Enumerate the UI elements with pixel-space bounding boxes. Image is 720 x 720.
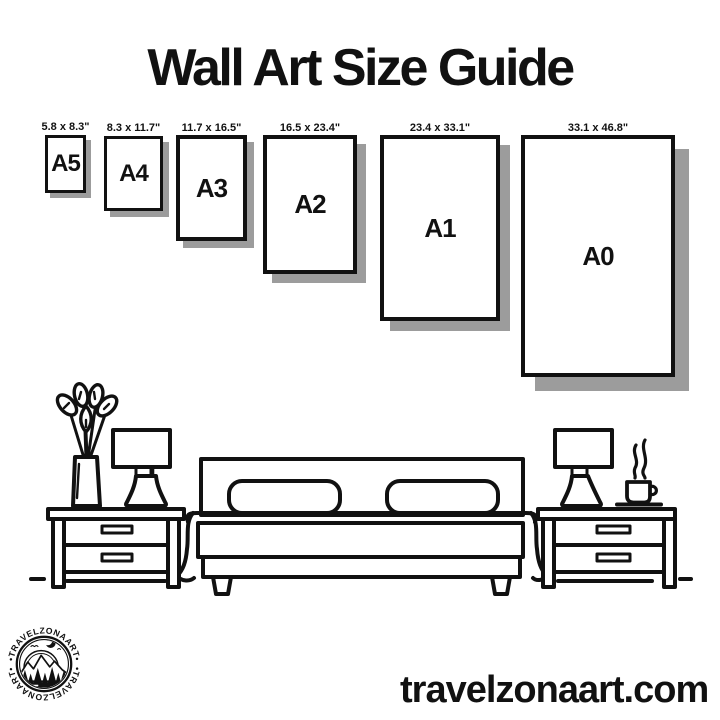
paper-a0-label: A0	[582, 241, 613, 272]
bed-leg-left	[213, 577, 231, 594]
paper-box-a4: 8.3 x 11.7" A4	[104, 136, 163, 211]
bed-base	[203, 557, 520, 577]
pillow-right-icon	[387, 481, 498, 513]
pillow-left-icon	[229, 481, 340, 513]
paper-box-a5: 5.8 x 8.3" A5	[45, 135, 86, 193]
floor-line	[31, 579, 691, 581]
paper-box-a0: 33.1 x 46.8" A0	[521, 135, 675, 377]
lamp-shade-left	[113, 430, 170, 467]
page-title: Wall Art Size Guide	[0, 42, 720, 94]
paper-a3-label: A3	[196, 173, 227, 204]
website-url: travelzonaart.com	[400, 671, 700, 709]
bedroom-scene-illustration	[0, 380, 720, 600]
mattress-top	[187, 513, 535, 522]
size-guide-page: Wall Art Size Guide 5.8 x 8.3" A5 8.3 x …	[0, 0, 720, 720]
coffee-cup-icon	[617, 440, 661, 505]
lamp-shade-right	[555, 430, 612, 467]
plant-vase-icon	[54, 382, 121, 506]
paper-a5-label: A5	[51, 150, 80, 178]
bird-icon	[57, 649, 60, 650]
paper-a4-label: A4	[119, 160, 148, 188]
nightstand-right-icon	[538, 509, 675, 587]
paper-box-a2: 16.5 x 23.4" A2	[263, 135, 357, 274]
bird-icon	[31, 646, 39, 647]
paper-a2-label: A2	[294, 189, 325, 220]
paper-a1-label: A1	[424, 213, 455, 244]
nightstand-left-icon	[48, 509, 184, 587]
paper-a3-dimensions: 11.7 x 16.5"	[182, 122, 242, 134]
steam	[643, 440, 646, 478]
steam	[634, 445, 636, 478]
paper-a1-dimensions: 23.4 x 33.1"	[410, 122, 470, 134]
duvet-front	[198, 523, 523, 557]
paper-box-a1: 23.4 x 33.1" A1	[380, 135, 500, 321]
paper-a4-dimensions: 8.3 x 11.7"	[107, 122, 161, 134]
table-lamp-right-icon	[555, 430, 612, 506]
bed-leg-right	[492, 577, 510, 594]
paper-box-a3: 11.7 x 16.5" A3	[176, 135, 247, 241]
paper-a2-dimensions: 16.5 x 23.4"	[280, 122, 340, 134]
table-lamp-left-icon	[113, 430, 170, 506]
paper-a5-dimensions: 5.8 x 8.3"	[41, 121, 89, 133]
paper-a0-dimensions: 33.1 x 46.8"	[568, 122, 628, 134]
brand-logo: •TRAVELZONAART• •TRAVELZONAART•	[2, 622, 86, 706]
bed-icon	[177, 459, 547, 594]
